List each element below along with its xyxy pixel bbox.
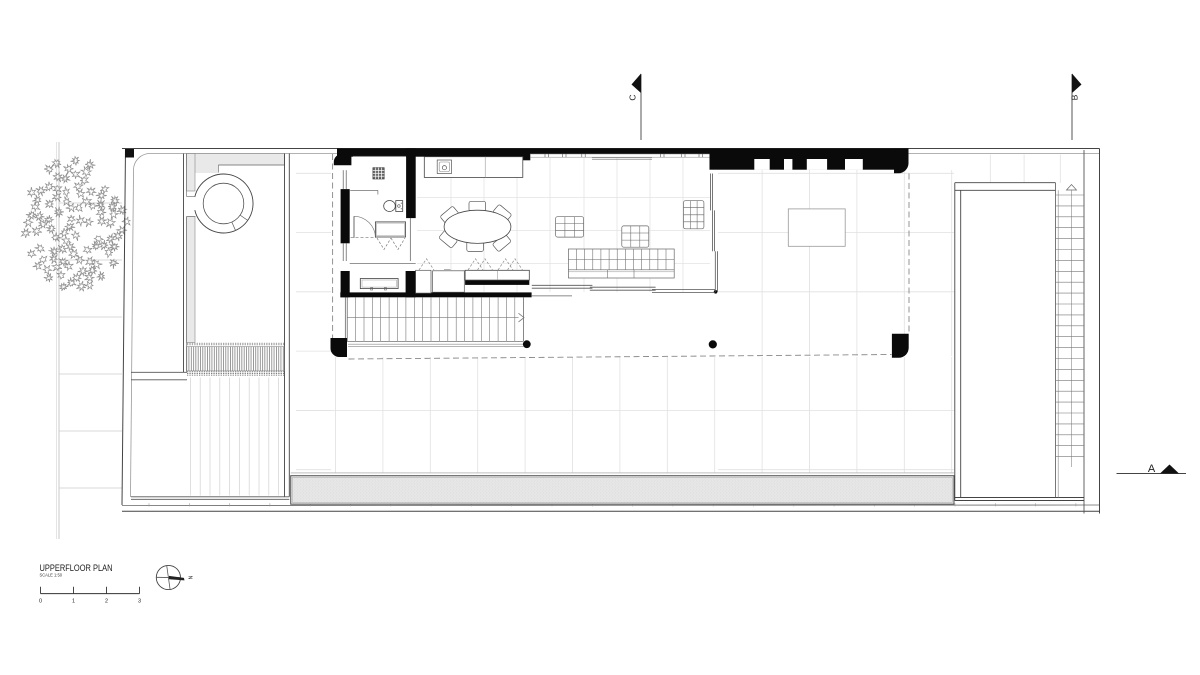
svg-text:UPPERFLOOR PLAN: UPPERFLOOR PLAN bbox=[40, 563, 113, 573]
svg-text:2: 2 bbox=[105, 599, 108, 605]
svg-text:SCALE 1:50: SCALE 1:50 bbox=[40, 573, 63, 578]
svg-text:N: N bbox=[187, 576, 193, 580]
svg-text:0: 0 bbox=[39, 599, 42, 605]
svg-text:C: C bbox=[628, 94, 638, 100]
svg-text:B: B bbox=[1070, 94, 1080, 100]
svg-text:3: 3 bbox=[138, 599, 141, 605]
svg-text:1: 1 bbox=[72, 599, 75, 605]
svg-text:A: A bbox=[1148, 463, 1156, 475]
